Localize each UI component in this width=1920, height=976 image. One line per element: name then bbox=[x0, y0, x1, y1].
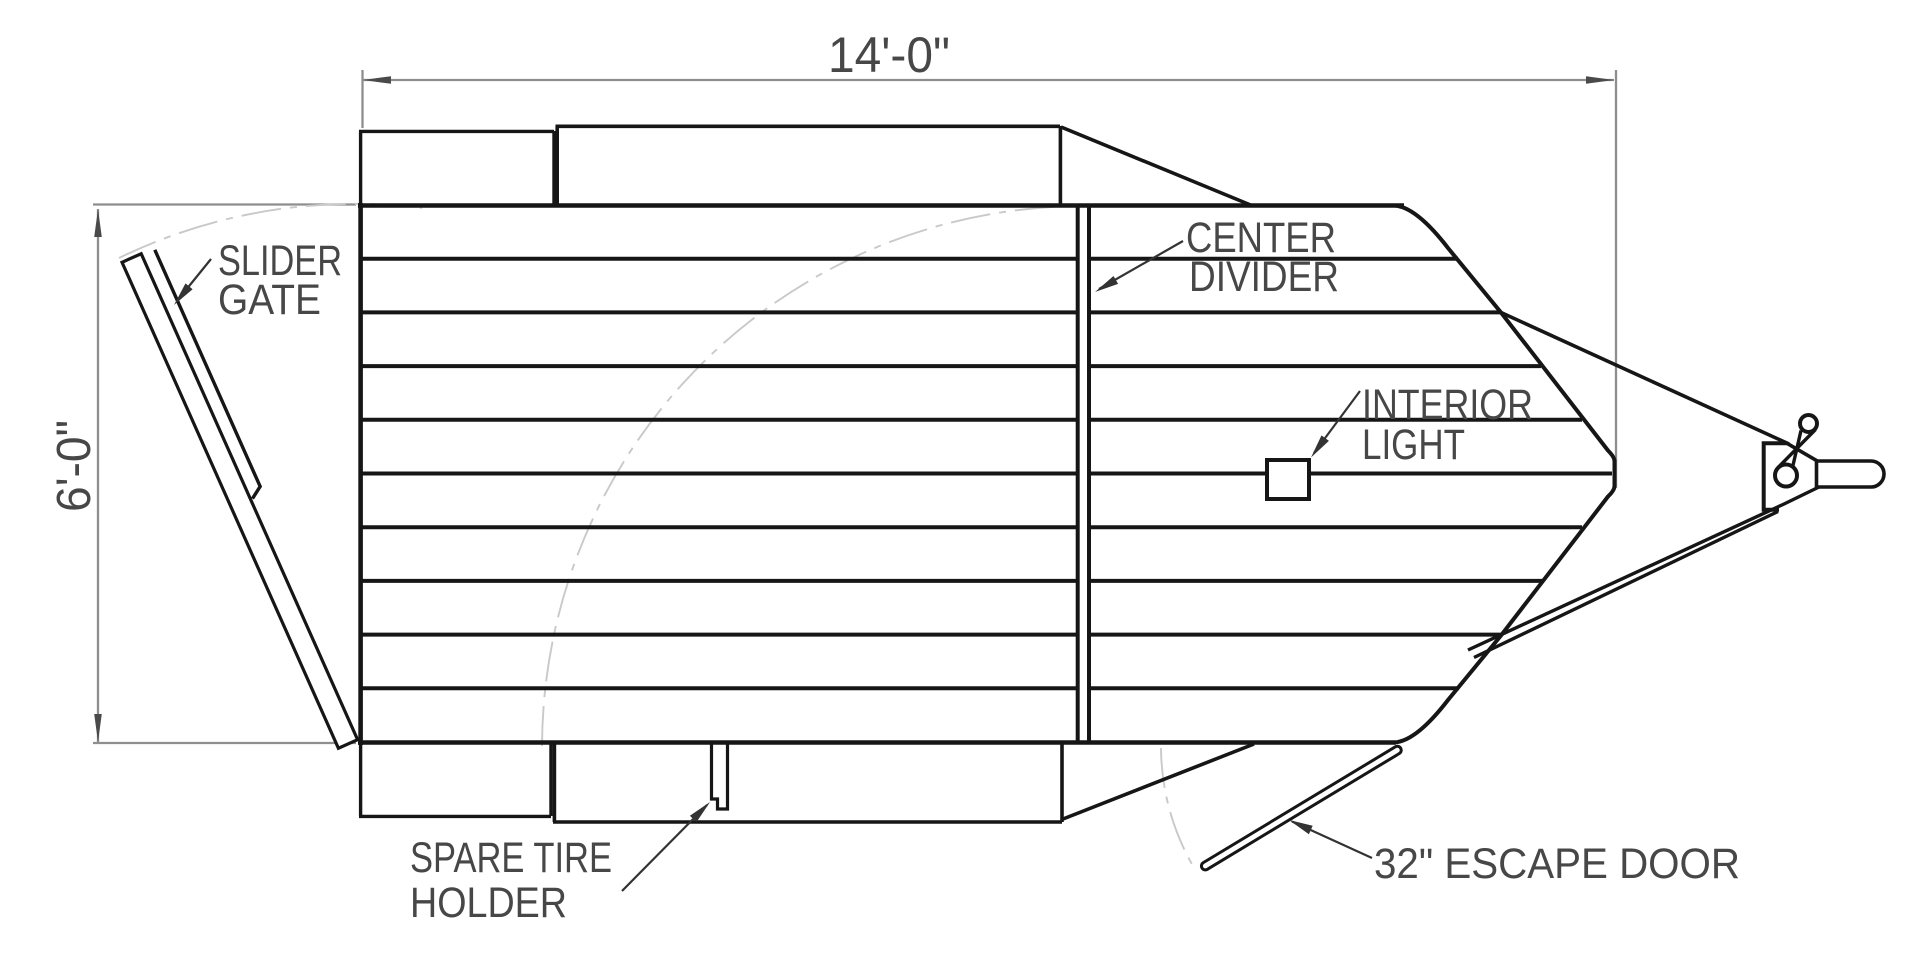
svg-text:SPARE TIRE: SPARE TIRE bbox=[410, 834, 612, 882]
svg-text:GATE: GATE bbox=[218, 276, 321, 324]
svg-text:HOLDER: HOLDER bbox=[410, 879, 567, 927]
svg-text:DIVIDER: DIVIDER bbox=[1189, 253, 1339, 301]
svg-text:14'-0": 14'-0" bbox=[828, 27, 950, 83]
svg-text:32" ESCAPE DOOR: 32" ESCAPE DOOR bbox=[1374, 840, 1740, 888]
svg-text:6'-0": 6'-0" bbox=[48, 420, 101, 512]
svg-text:LIGHT: LIGHT bbox=[1362, 421, 1465, 469]
